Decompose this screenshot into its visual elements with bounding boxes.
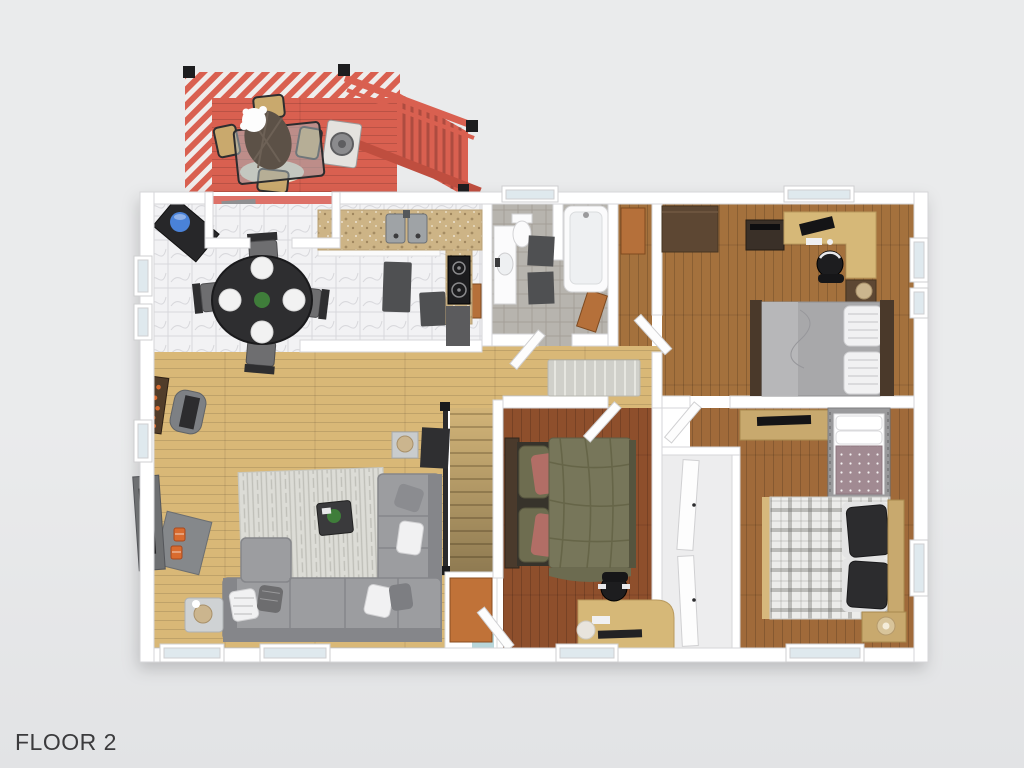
crib [828, 408, 890, 500]
tv [750, 224, 780, 230]
pillow [842, 558, 890, 612]
stove [448, 256, 470, 304]
keyboard [806, 238, 822, 245]
floor-plan-rendering [0, 0, 1024, 768]
window [134, 420, 152, 462]
under-stair-closet [445, 572, 497, 648]
hall-closet-door [621, 208, 645, 254]
centerpiece [254, 292, 270, 308]
pillow [842, 502, 890, 558]
wardrobe [662, 206, 718, 252]
sofa-pillow [396, 520, 424, 555]
window [134, 256, 152, 296]
pillow [836, 416, 882, 444]
sofa-pillow [256, 584, 283, 613]
deck-railing-left [185, 72, 212, 198]
kitchen-mat [382, 262, 412, 313]
vanity-sink [494, 226, 516, 304]
dresser [740, 410, 830, 440]
headboard [505, 438, 519, 568]
window [910, 288, 928, 318]
pillow [844, 352, 882, 394]
window [910, 238, 928, 282]
sofa-chaise [241, 538, 291, 582]
coffee-table [316, 500, 353, 535]
window [786, 644, 864, 662]
side-table [185, 598, 223, 632]
tv-stand [746, 220, 784, 250]
deck [183, 64, 480, 198]
counter-dark-section [446, 306, 470, 346]
lamp [856, 283, 872, 299]
nightstand [846, 280, 876, 304]
dining-chair [244, 340, 277, 374]
grill [322, 120, 362, 168]
crib-mattress [836, 446, 882, 494]
nightstand [862, 612, 906, 642]
desk-stool [577, 621, 595, 639]
bath-mat [527, 272, 554, 305]
bath-mat [527, 235, 555, 266]
side-table [392, 432, 418, 458]
floor-label: FLOOR 2 [15, 729, 117, 756]
stairs [440, 402, 493, 575]
bed-3 [762, 497, 904, 619]
window [784, 186, 854, 202]
floor-plan-canvas: FLOOR 2 [0, 0, 1024, 768]
table-lamp [397, 436, 413, 452]
window [502, 186, 558, 202]
headboard [888, 500, 904, 618]
kitchen-mat [419, 291, 447, 326]
plate [251, 321, 273, 343]
office-chair [817, 251, 844, 283]
sofa-pillow [388, 583, 413, 612]
plate [251, 257, 273, 279]
pillow [844, 306, 882, 346]
window [260, 644, 330, 662]
window [160, 644, 224, 662]
faucet [403, 210, 410, 218]
hall-runner-rug [548, 360, 640, 396]
bed-2 [505, 438, 636, 582]
window [910, 540, 928, 596]
doormat [420, 427, 450, 468]
house [133, 186, 928, 662]
footboard [629, 440, 636, 568]
plate [283, 289, 305, 311]
tv [757, 415, 811, 426]
bed-1 [750, 300, 894, 396]
window [134, 304, 152, 340]
plate [219, 289, 241, 311]
footboard [750, 300, 762, 396]
window [556, 644, 618, 662]
footboard [762, 497, 770, 619]
headboard [880, 300, 894, 396]
sofa-pillow [229, 588, 260, 622]
